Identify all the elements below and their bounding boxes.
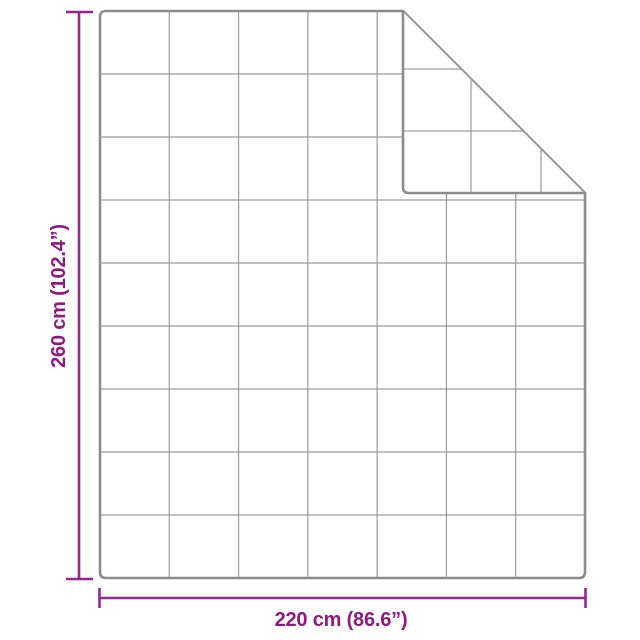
height-dimension-line bbox=[66, 12, 93, 579]
width-dimension-line bbox=[100, 588, 587, 608]
dimension-diagram: 260 cm (102.4”) 220 cm (86.6”) bbox=[0, 0, 640, 640]
height-dimension-label: 260 cm (102.4”) bbox=[49, 224, 69, 368]
width-dimension-label: 220 cm (86.6”) bbox=[275, 610, 408, 630]
blanket-outline bbox=[100, 11, 585, 578]
fold-flap bbox=[403, 11, 585, 193]
blanket-illustration bbox=[0, 0, 640, 640]
